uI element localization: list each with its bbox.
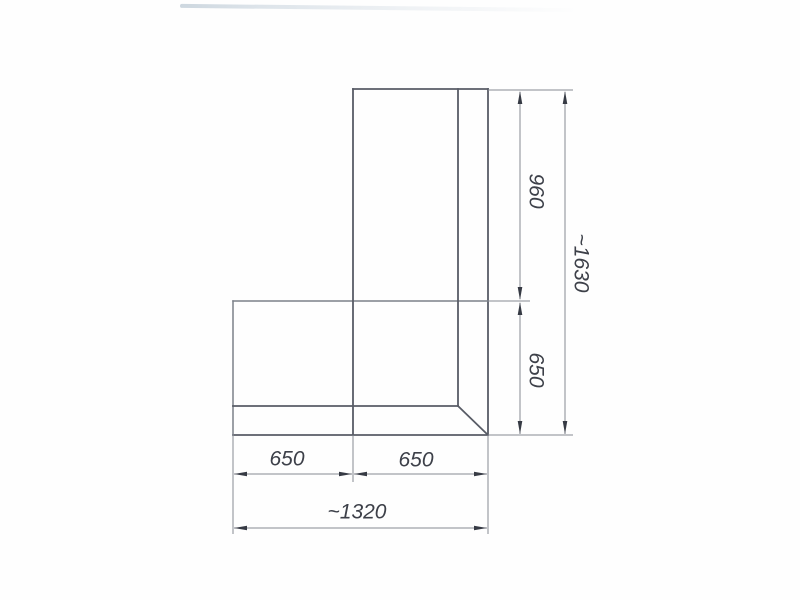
arrowhead-up <box>563 91 568 104</box>
dimension-label-960: 960 <box>525 173 548 208</box>
arrowhead-up <box>518 302 523 315</box>
dimension-label-650-bottom-left: 650 <box>269 448 304 471</box>
arrowhead-right <box>339 472 352 477</box>
arrowhead-down <box>518 287 523 300</box>
mitre-diagonal-line <box>458 406 488 435</box>
arrowhead-right <box>474 526 487 531</box>
arrowhead-left <box>234 472 247 477</box>
dimension-label-650-right: 650 <box>525 352 548 387</box>
technical-drawing-svg: 960 650 ~1630 650 650 <box>0 0 800 600</box>
scanned-drawing-page: 960 650 ~1630 650 650 <box>0 0 800 600</box>
arrowhead-left <box>234 526 247 531</box>
dimension-bottom-overall-1320: ~1320 <box>234 501 487 531</box>
dimension-right-960: 960 <box>518 91 548 300</box>
dimension-label-650-bottom-right: 650 <box>398 449 433 472</box>
backrest-inner-lines <box>233 89 488 435</box>
dimension-bottom-right-650: 650 <box>354 449 487 477</box>
dimension-label-1320: ~1320 <box>328 501 387 524</box>
arrowhead-down <box>518 421 523 434</box>
dimension-label-1630: ~1630 <box>570 234 593 293</box>
arrowhead-right <box>474 472 487 477</box>
dimension-right-overall-1630: ~1630 <box>563 91 593 434</box>
dimension-right-650: 650 <box>518 302 548 434</box>
dimension-bottom-left-650: 650 <box>234 448 352 477</box>
arrowhead-left <box>354 472 367 477</box>
arrowhead-up <box>518 91 523 104</box>
arrowhead-down <box>563 421 568 434</box>
furniture-outline <box>233 89 488 435</box>
